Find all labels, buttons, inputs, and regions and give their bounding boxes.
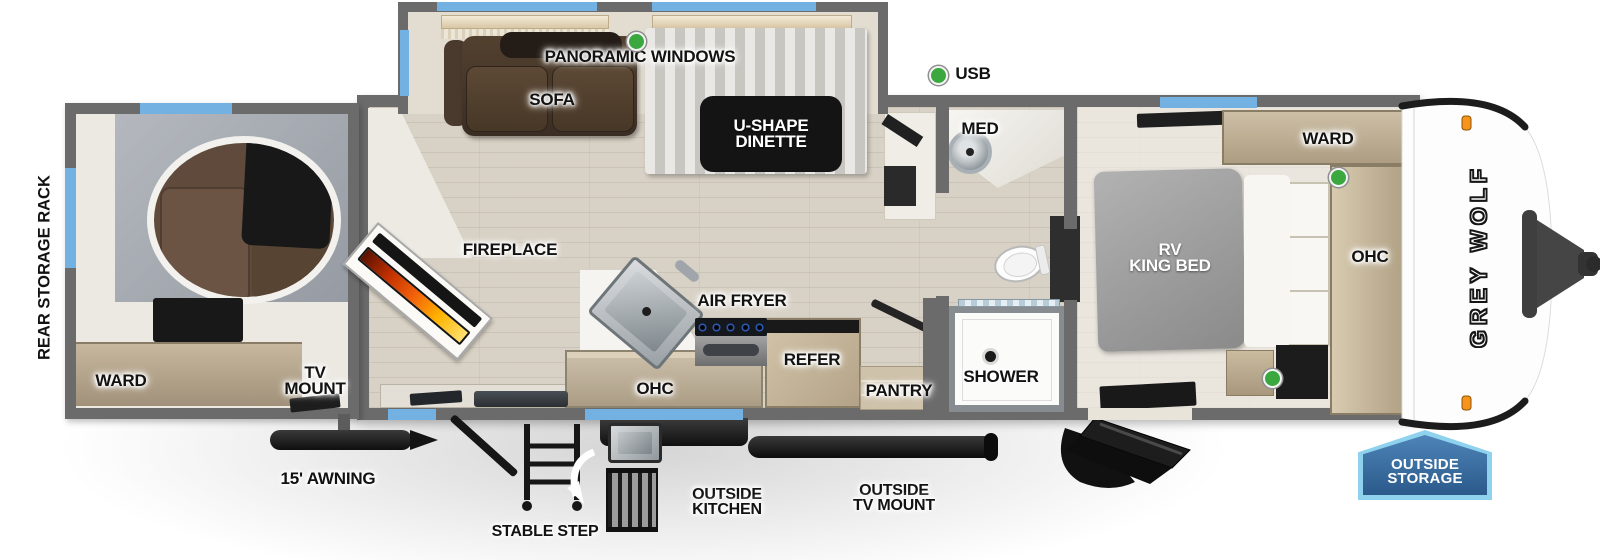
shower-pan-line [962, 319, 1052, 401]
floorplan-canvas: U-SHAPE DINETTE PANORAMIC WINDOWS SOFA U… [0, 0, 1600, 560]
tongue-jack [1522, 210, 1537, 318]
garage-window-left [65, 168, 76, 268]
bed-foot-cabinet [1276, 345, 1328, 399]
garage-ward-label: WARD [95, 371, 146, 391]
burner-icon [755, 323, 764, 332]
outside-tv-mount-label: OUTSIDE TV MOUNT [853, 483, 935, 513]
sink-drain [966, 148, 974, 156]
refer-label: REFER [784, 350, 841, 370]
outside-tv-mount-endcap [984, 433, 998, 461]
usb-dot-bed [1263, 369, 1282, 388]
window-valance [441, 15, 609, 29]
burner-icon [726, 323, 735, 332]
bedroom-ohc-label: OHC [1351, 247, 1388, 267]
bunk-tv-icon [241, 136, 335, 249]
shower-drain [985, 351, 996, 362]
usb-dot-legend [929, 66, 948, 85]
toilet-seat [1001, 249, 1039, 280]
garage-tv-icon [153, 298, 243, 342]
stove-body [695, 336, 767, 366]
bed-linens [1244, 175, 1290, 347]
slideout-window-1 [437, 2, 597, 11]
outside-sink-basin [618, 432, 652, 454]
air-fryer-label: AIR FRYER [697, 291, 786, 311]
stove-cooktop [695, 318, 767, 336]
burner-icon [698, 323, 707, 332]
king-bed-label: RV KING BED [1129, 242, 1211, 274]
entry-mat [1099, 382, 1196, 411]
hall-cabinet-dark [884, 166, 916, 206]
a-frame-hitch [1537, 220, 1584, 308]
outside-griddle [606, 468, 658, 532]
awning-label: 15' AWNING [281, 469, 376, 489]
window-valance [652, 15, 852, 29]
shelf-line [1286, 290, 1328, 292]
entry-door-gap [1088, 408, 1192, 420]
garage-tv-mount-label: TV MOUNT [284, 365, 345, 397]
bedroom-window-top [1160, 97, 1257, 108]
outside-kitchen-label: OUTSIDE KITCHEN [692, 487, 762, 517]
front-cap [1398, 94, 1600, 434]
bath-wall-right-top [1064, 107, 1077, 229]
marker-light-bottom [1462, 396, 1471, 410]
shower [948, 306, 1066, 412]
rear-storage-rack-label: REAR STORAGE RACK [30, 162, 60, 374]
credenza-slab [474, 391, 568, 407]
bath-wall-left-top [936, 107, 949, 193]
garage-window-top [140, 103, 232, 114]
marker-light-top [1462, 116, 1471, 130]
door-swing-arrow [566, 448, 600, 506]
stable-step-label: STABLE STEP [492, 523, 599, 541]
bottom-window-1 [388, 409, 436, 420]
outside-storage-label: OUTSIDE STORAGE [1387, 458, 1462, 487]
pantry-wall [923, 298, 936, 420]
shower-label: SHOWER [963, 367, 1038, 387]
slideout-window-left [400, 30, 409, 96]
bath-wall-left-bottom [936, 296, 949, 420]
garage-seating-cutout [147, 136, 341, 304]
sofa-label: SOFA [529, 90, 575, 110]
outside-tv-mount-bar [748, 436, 996, 458]
shower-glass [958, 299, 1060, 307]
ohc-kitchen-label: OHC [636, 379, 673, 399]
med-label: MED [961, 119, 998, 139]
burner-icon [741, 323, 750, 332]
burner-icon [712, 323, 721, 332]
usb-dot-ward [1329, 168, 1348, 187]
bedroom-ohc-cabinet [1330, 165, 1404, 415]
shelf-line [1286, 236, 1328, 238]
oven-handle [703, 344, 759, 356]
brand-logo: GREY WOLF [1462, 148, 1496, 364]
usb-label: USB [955, 64, 990, 84]
bottom-window-2 [585, 409, 743, 420]
slideout-window-2 [652, 2, 816, 11]
pantry-label: PANTRY [866, 381, 933, 401]
entry-fold-steps [1040, 410, 1210, 505]
refer-top-band [767, 320, 859, 333]
fireplace-label: FIREPLACE [463, 240, 558, 260]
dinette-label: U-SHAPE DINETTE [733, 118, 808, 150]
outside-kitchen-sink [608, 423, 662, 463]
usb-dot-panoramic [627, 32, 646, 51]
awning-tube [270, 430, 412, 450]
bedroom-shelves [1284, 182, 1330, 346]
seat-cushion [160, 187, 250, 303]
bath-wall-right-bottom [1064, 300, 1077, 420]
bedroom-ward-label: WARD [1302, 129, 1353, 149]
